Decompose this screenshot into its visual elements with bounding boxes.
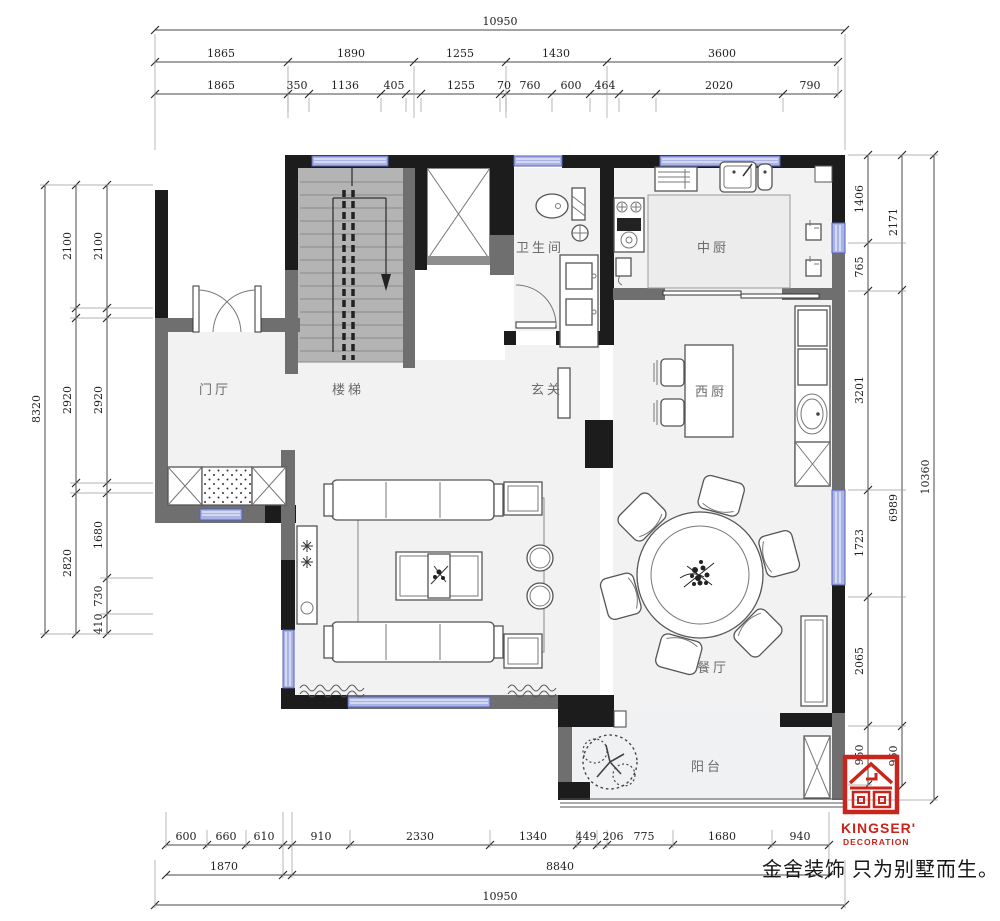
dim-right-outer: 10360 — [919, 460, 932, 495]
dim-bot-total: 10950 — [483, 890, 518, 903]
dim-top-r2-2: 1255 — [446, 47, 474, 60]
dim-right-i-0: 1406 — [853, 185, 866, 213]
logo-subtitle-text: DECORATION — [843, 837, 910, 847]
room-label-entry: 门厅 — [199, 383, 231, 398]
dim-top-r3-1: 350 — [287, 79, 308, 92]
dim-bot-r1-2: 610 — [254, 830, 275, 843]
dim-bot-r2-0: 1870 — [210, 860, 238, 873]
elevator — [427, 168, 490, 265]
coffee-table — [396, 552, 482, 600]
dim-top-r3-2: 1136 — [331, 79, 359, 92]
dimensions-left: 2100 2920 1680 730 410 2100 2920 2820 83… — [30, 181, 153, 638]
room-label-bathroom: 卫生间 — [516, 241, 564, 256]
dim-top-r3-4: 1255 — [447, 79, 475, 92]
dim-bot-r1-9: 1680 — [708, 830, 736, 843]
room-label-western-kitchen: 西厨 — [695, 385, 727, 400]
dimensions-bottom: 600 660 610 910 2330 1340 449 206 775 16… — [151, 812, 849, 909]
dim-top-r3-9: 2020 — [705, 79, 733, 92]
dim-bot-r1-7: 206 — [603, 830, 624, 843]
dim-bot-r1-4: 2330 — [406, 830, 434, 843]
dim-top-r3-6: 760 — [520, 79, 541, 92]
dimensions-right: 1406 765 3201 1723 2065 950 2171 6989 96… — [848, 151, 938, 804]
dim-right-m-1: 6989 — [887, 494, 900, 522]
dim-top-r2-4: 3600 — [708, 47, 736, 60]
logo-brand-text: KINGSER' — [841, 820, 916, 836]
dim-bot-r2-1: 8840 — [546, 860, 574, 873]
dim-top-r3-3: 405 — [384, 79, 405, 92]
dim-top-r2-0: 1865 — [207, 47, 235, 60]
dim-left-m-2: 2820 — [61, 549, 74, 577]
dim-right-i-2: 3201 — [853, 376, 866, 404]
dim-top-r3-5: 70 — [497, 79, 511, 92]
dim-top-r3-8: 464 — [595, 79, 616, 92]
sofa-bottom — [324, 622, 503, 662]
room-label-dining: 餐厅 — [697, 660, 729, 676]
room-label-chinese-kitchen: 中厨 — [697, 241, 729, 256]
dim-top-r3-0: 1865 — [207, 79, 235, 92]
dim-left-outer: 8320 — [30, 395, 43, 423]
floor-plan-drawing: 门厅 楼梯 卫生间 玄关 中厨 西厨 餐厅 阳台 10950 1865 1890… — [0, 0, 1000, 921]
dim-left-i-4: 410 — [92, 614, 105, 635]
logo-tagline-text: 金舍装饰 只为别墅而生。 — [762, 858, 999, 881]
dim-top-total: 10950 — [483, 15, 518, 28]
dim-bot-r1-10: 940 — [790, 830, 811, 843]
dim-right-m-0: 2171 — [887, 208, 900, 236]
dim-bot-r1-0: 600 — [176, 830, 197, 843]
dim-left-i-0: 2100 — [92, 232, 105, 260]
room-label-foyer: 玄关 — [531, 383, 563, 398]
dim-left-i-3: 730 — [92, 586, 105, 607]
entry-double-door — [193, 286, 261, 332]
dim-bot-r1-8: 775 — [634, 830, 655, 843]
dim-left-i-1: 2920 — [92, 386, 105, 414]
dim-top-r3-10: 790 — [800, 79, 821, 92]
dim-bot-r1-6: 449 — [576, 830, 597, 843]
dim-right-i-1: 765 — [853, 257, 866, 278]
dim-top-r3-7: 600 — [561, 79, 582, 92]
tv-cabinet — [297, 526, 317, 624]
dimensions-top: 10950 1865 1890 1255 1430 3600 1865 350 … — [151, 15, 849, 150]
room-label-stairs: 楼梯 — [332, 383, 364, 398]
dim-bot-r1-3: 910 — [311, 830, 332, 843]
entry-cabinets — [168, 467, 286, 505]
floor-plan-page: 门厅 楼梯 卫生间 玄关 中厨 西厨 餐厅 阳台 10950 1865 1890… — [0, 0, 1000, 921]
dim-top-r2-3: 1430 — [542, 47, 570, 60]
dim-right-i-4: 2065 — [853, 647, 866, 675]
dim-left-m-0: 2100 — [61, 232, 74, 260]
dim-left-m-1: 2920 — [61, 386, 74, 414]
dim-top-r2-1: 1890 — [337, 47, 365, 60]
dim-right-i-3: 1723 — [853, 529, 866, 557]
dim-left-i-2: 1680 — [92, 521, 105, 549]
room-label-balcony: 阳台 — [691, 760, 723, 775]
sofa-top — [324, 480, 503, 520]
dim-bot-r1-5: 1340 — [519, 830, 547, 843]
dim-bot-r1-1: 660 — [216, 830, 237, 843]
